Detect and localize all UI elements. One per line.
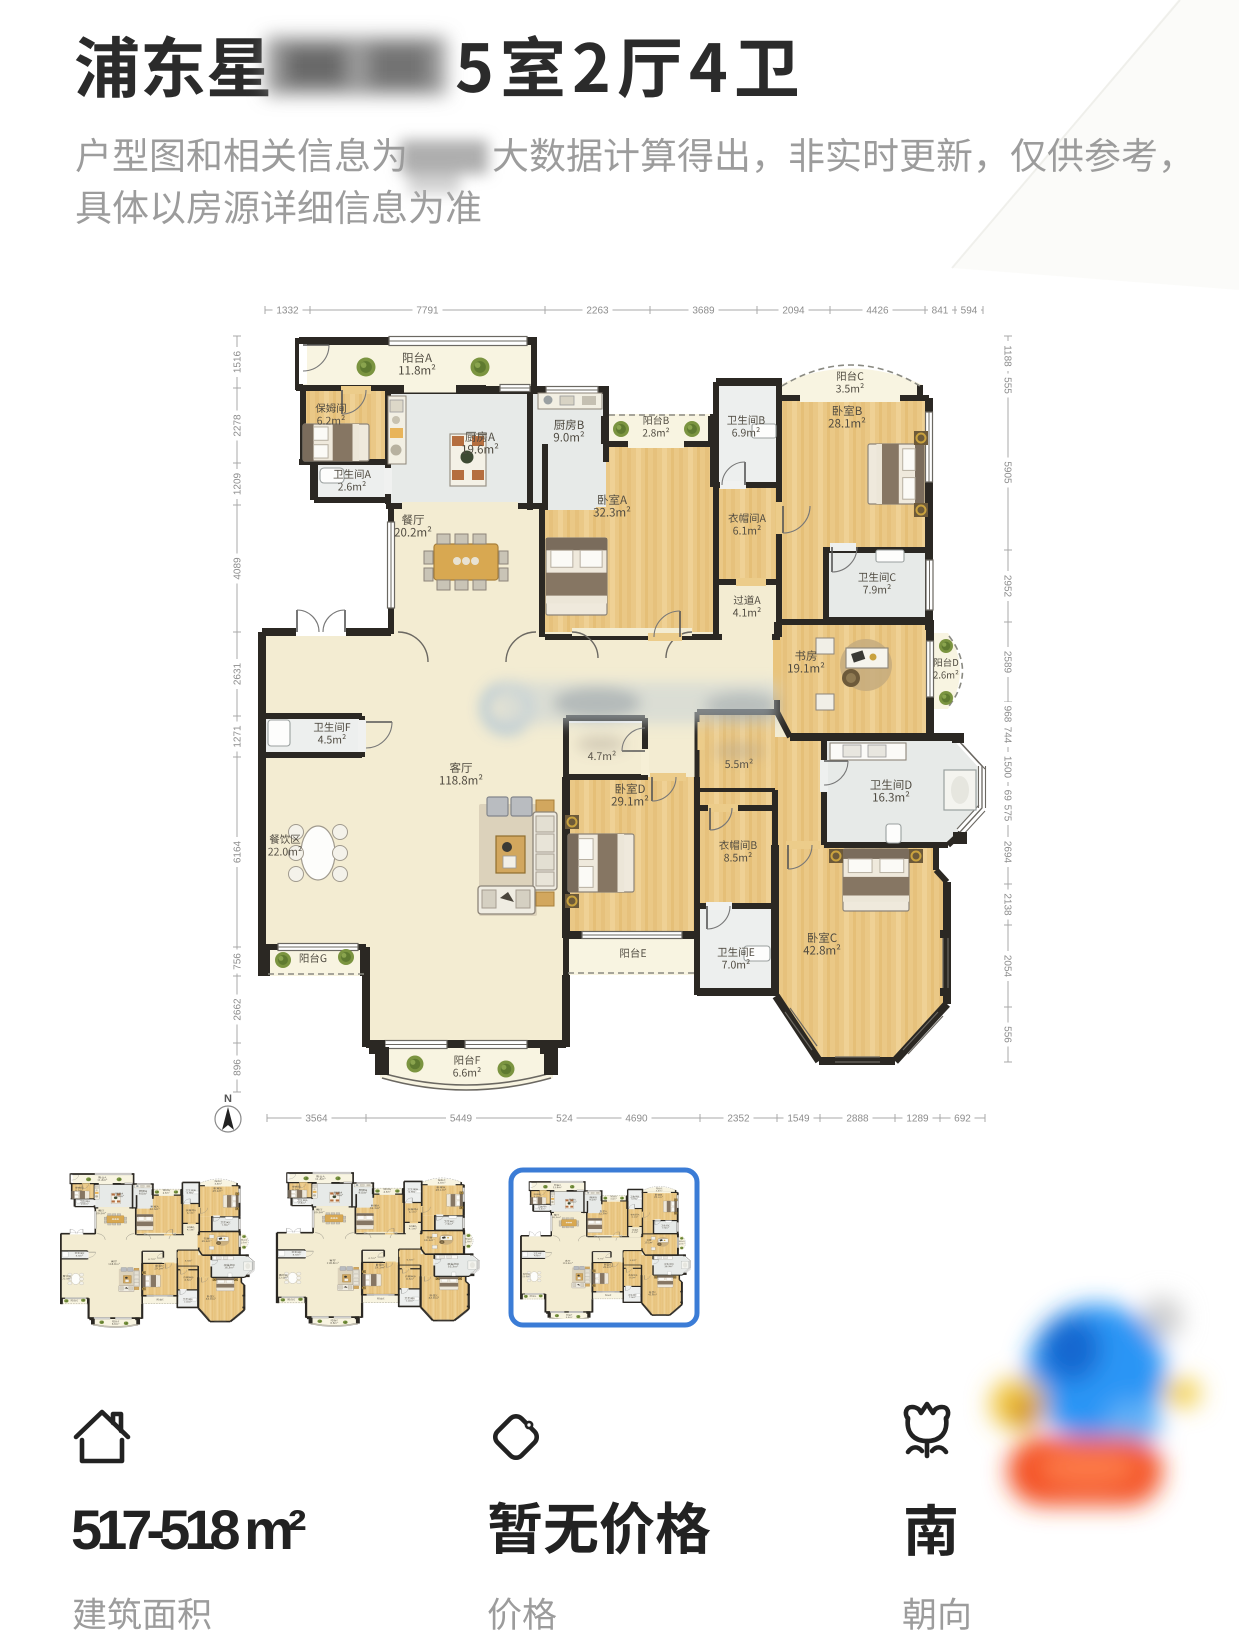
svg-text:1289: 1289 — [906, 1114, 929, 1125]
svg-text:5905: 5905 — [1002, 461, 1013, 484]
svg-text:744: 744 — [1002, 727, 1013, 744]
svg-text:2888: 2888 — [846, 1114, 869, 1125]
svg-text:896: 896 — [233, 1059, 244, 1076]
svg-text:5449: 5449 — [450, 1114, 473, 1125]
svg-text:2138: 2138 — [1002, 893, 1013, 916]
svg-text:2631: 2631 — [233, 662, 244, 685]
svg-text:524: 524 — [556, 1114, 573, 1125]
svg-text:1188: 1188 — [1002, 345, 1013, 367]
svg-text:3689: 3689 — [692, 306, 715, 317]
svg-text:2662: 2662 — [233, 998, 244, 1021]
svg-text:2263: 2263 — [586, 306, 609, 317]
svg-text:6164: 6164 — [233, 840, 244, 863]
svg-text:2054: 2054 — [1002, 955, 1013, 978]
svg-text:692: 692 — [954, 1114, 971, 1125]
svg-text:3564: 3564 — [305, 1114, 328, 1125]
svg-text:2352: 2352 — [727, 1114, 750, 1125]
svg-text:1209: 1209 — [233, 472, 244, 495]
svg-text:756: 756 — [233, 953, 244, 970]
svg-text:7791: 7791 — [416, 306, 439, 317]
svg-text:517-518 m²: 517-518 m² — [71, 1498, 306, 1561]
svg-text:4690: 4690 — [625, 1114, 648, 1125]
svg-text:N: N — [224, 1093, 232, 1105]
svg-text:968: 968 — [1002, 706, 1013, 723]
svg-text:1549: 1549 — [787, 1114, 810, 1125]
svg-text:1500: 1500 — [1002, 756, 1013, 779]
svg-text:1332: 1332 — [276, 306, 299, 317]
svg-text:841: 841 — [932, 306, 949, 317]
svg-text:575: 575 — [1002, 805, 1013, 822]
svg-text:555: 555 — [1002, 377, 1013, 394]
svg-text:2094: 2094 — [782, 306, 805, 317]
svg-text:2952: 2952 — [1002, 575, 1013, 598]
svg-text:1516: 1516 — [233, 350, 244, 373]
svg-text:594: 594 — [961, 306, 978, 317]
svg-text:2694: 2694 — [1002, 841, 1013, 864]
svg-text:556: 556 — [1002, 1026, 1013, 1043]
svg-text:4089: 4089 — [233, 557, 244, 580]
svg-text:2278: 2278 — [233, 414, 244, 437]
svg-text:1271: 1271 — [233, 725, 244, 748]
svg-text:2589: 2589 — [1002, 651, 1013, 674]
svg-text:4426: 4426 — [866, 306, 889, 317]
